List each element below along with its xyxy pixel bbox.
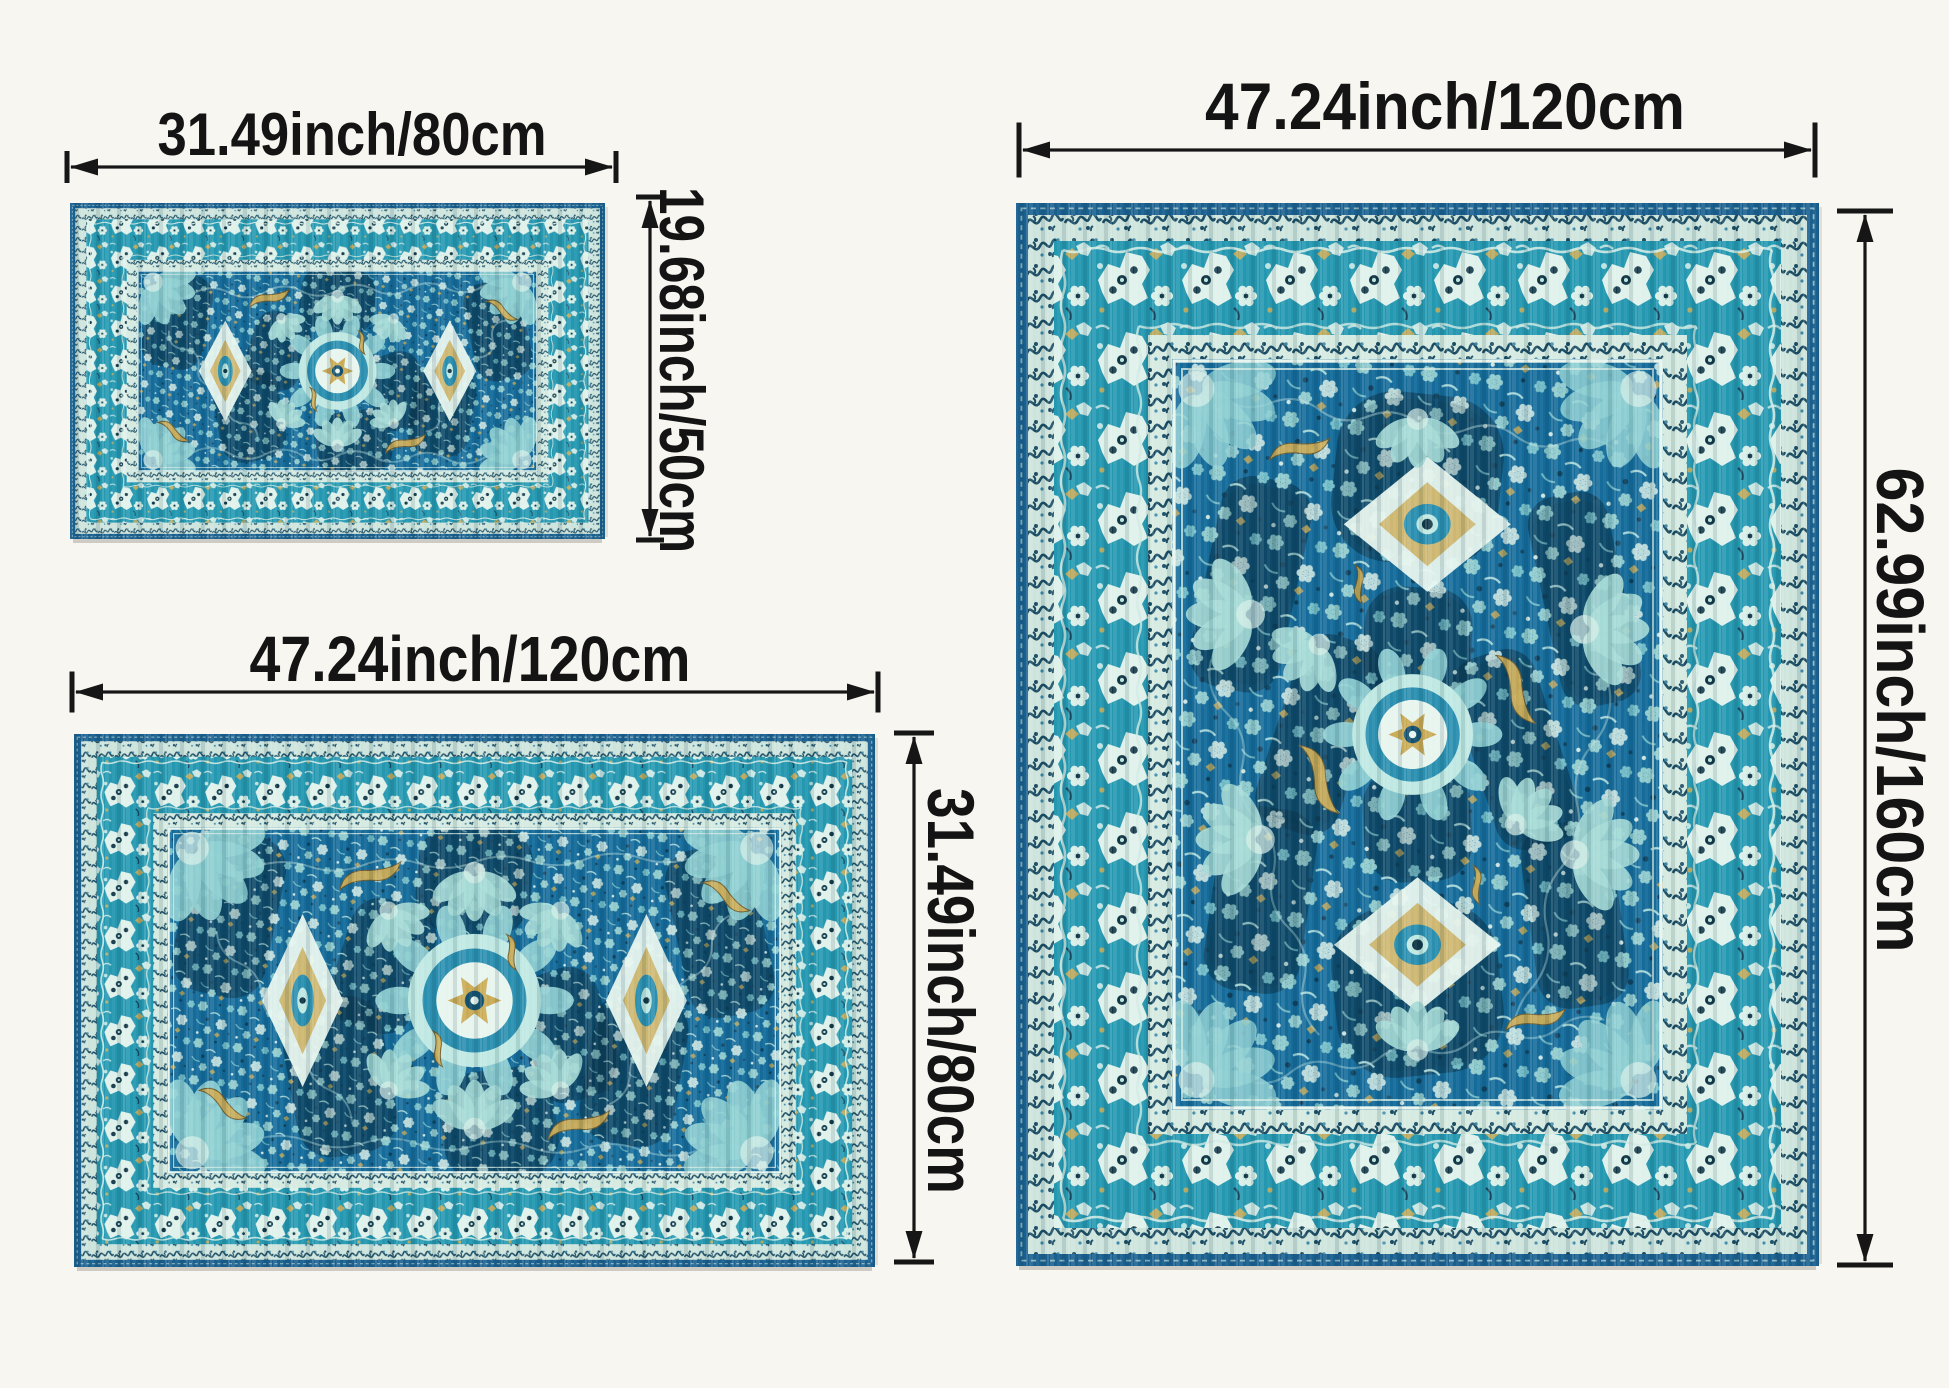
svg-text:31.49inch/80cm: 31.49inch/80cm bbox=[158, 101, 547, 168]
svg-text:62.99inch/160cm: 62.99inch/160cm bbox=[1862, 468, 1937, 953]
svg-text:19.68inch/50cm: 19.68inch/50cm bbox=[646, 187, 716, 553]
svg-text:31.49inch/80cm: 31.49inch/80cm bbox=[914, 788, 988, 1194]
svg-text:47.24inch/120cm: 47.24inch/120cm bbox=[250, 623, 691, 695]
svg-text:47.24inch/120cm: 47.24inch/120cm bbox=[1205, 69, 1685, 143]
